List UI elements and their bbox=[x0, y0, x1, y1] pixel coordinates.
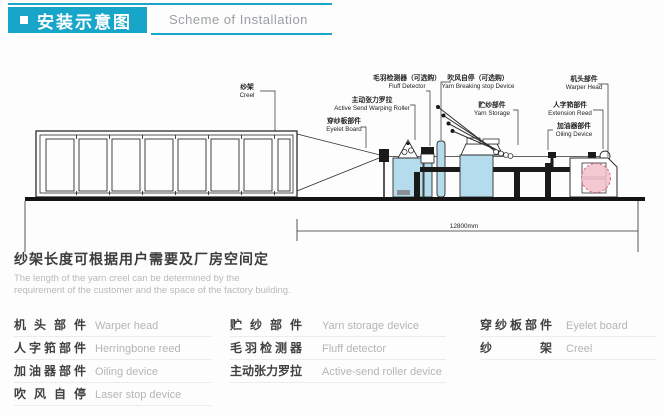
label-warper-head-en: Warper Head bbox=[566, 84, 603, 91]
note-en-line1: The length of the yarn creel can be dete… bbox=[14, 273, 291, 285]
legend-item: 主动张力罗拉Active-send roller device bbox=[230, 360, 446, 383]
floor-line bbox=[25, 197, 645, 201]
legend-term-en: Oiling device bbox=[95, 361, 158, 383]
label-yarn-breaking-en: Yarn Breaking stop Device bbox=[442, 83, 515, 90]
note-zh: 纱架长度可根据用户需要及厂房空间定 bbox=[14, 249, 291, 269]
legend-item: 人字筘部件Herringbone reed bbox=[14, 337, 212, 360]
legend-term-zh: 吹风自停 bbox=[14, 383, 86, 405]
legend-term-zh: 人字筘部件 bbox=[14, 337, 86, 359]
header-accent-line-top bbox=[8, 3, 332, 5]
label-leader-lines bbox=[260, 82, 608, 157]
legend-term-en: Fluff detector bbox=[322, 338, 386, 360]
legend-column-3: 穿纱板部件Eyelet board 纱架Creel bbox=[480, 314, 656, 360]
legend-item: 吹风自停Laser stop device bbox=[14, 383, 212, 406]
header-accent-line-bottom bbox=[151, 33, 332, 35]
label-creel-zh: 纱架 bbox=[239, 82, 254, 91]
creel-length-note: 纱架长度可根据用户需要及厂房空间定 The length of the yarn… bbox=[14, 249, 291, 296]
legend-term-en: Laser stop device bbox=[95, 384, 181, 406]
legend-term-en: Eyelet board bbox=[566, 315, 628, 337]
label-fluff-detector-zh: 毛羽检测器（可选购） bbox=[373, 73, 441, 82]
warper-head-drawing bbox=[570, 158, 617, 197]
legend-term-en: Active-send roller device bbox=[322, 361, 442, 383]
label-extension-reed-zh: 人字筘部件 bbox=[553, 100, 587, 109]
label-eyelet-board-zh: 穿纱板部件 bbox=[327, 116, 361, 125]
label-extension-reed-en: Extension Reed bbox=[548, 110, 592, 117]
yarn-storage-drawing bbox=[436, 105, 513, 197]
legend-term-zh: 贮纱部件 bbox=[230, 314, 302, 336]
legend-item: 毛羽检测器Fluff detector bbox=[230, 337, 446, 360]
label-oiling-device-en: Oiling Device bbox=[556, 131, 593, 138]
legend-item: 加油器部件Oiling device bbox=[14, 360, 212, 383]
legend-term-en: Yarn storage device bbox=[322, 315, 419, 337]
legend-item: 贮纱部件Yarn storage device bbox=[230, 314, 446, 337]
legend-term-en: Warper head bbox=[95, 315, 158, 337]
bullet-square-icon bbox=[20, 16, 28, 24]
label-warper-head-zh: 机头部件 bbox=[570, 74, 597, 83]
label-active-roller-en: Active Send Warping Roller bbox=[334, 105, 409, 112]
legend-term-en: Creel bbox=[566, 338, 592, 360]
legend-term-zh: 主动张力罗拉 bbox=[230, 360, 302, 382]
eyelet-board-drawing bbox=[379, 149, 389, 197]
legend-term-zh: 穿纱板部件 bbox=[480, 314, 552, 336]
legend-term-zh: 纱架 bbox=[480, 337, 552, 359]
legend-item: 机头部件Warper head bbox=[14, 314, 212, 337]
legend-column-1: 机头部件Warper head 人字筘部件Herringbone reed 加油… bbox=[14, 314, 212, 406]
label-yarn-storage-en: Yarn Storage bbox=[474, 110, 511, 117]
legend-term-zh: 毛羽检测器 bbox=[230, 337, 302, 359]
legend-item: 纱架Creel bbox=[480, 337, 656, 360]
page-title-en: Scheme of Installation bbox=[169, 12, 308, 27]
warp-beam-circle bbox=[582, 164, 611, 193]
installation-diagram: 12800mm 纱架 Creel 穿纱板部件 Eyelet Board 主动张力… bbox=[0, 45, 664, 255]
dimension-label: 12800mm bbox=[450, 223, 478, 230]
note-en-line2: requirement of the customer and the spac… bbox=[14, 285, 291, 297]
dimension-lines bbox=[25, 201, 638, 252]
legend-term-en: Herringbone reed bbox=[95, 338, 181, 360]
label-yarn-storage-zh: 贮纱部件 bbox=[477, 100, 505, 109]
legend-term-zh: 机头部件 bbox=[14, 314, 86, 336]
legend-column-2: 贮纱部件Yarn storage device 毛羽检测器Fluff detec… bbox=[230, 314, 446, 383]
label-yarn-breaking-zh: 吹风自停（可选购） bbox=[447, 73, 508, 82]
page-title-zh: 安装示意图 bbox=[37, 8, 132, 33]
note-en: The length of the yarn creel can be dete… bbox=[14, 273, 291, 296]
legend-item: 穿纱板部件Eyelet board bbox=[480, 314, 656, 337]
label-active-roller-zh: 主动张力罗拉 bbox=[352, 95, 393, 104]
label-oiling-device-zh: 加油器部件 bbox=[556, 121, 591, 130]
yarn-thread-lines bbox=[297, 134, 600, 191]
legend-term-zh: 加油器部件 bbox=[14, 360, 86, 382]
creel-drawing bbox=[36, 131, 297, 197]
label-fluff-detector-en: Fluff Detector bbox=[388, 83, 425, 90]
title-badge: 安装示意图 bbox=[8, 7, 147, 33]
label-creel-en: Creel bbox=[240, 92, 255, 99]
label-eyelet-board-en: Eyelet Board bbox=[326, 126, 362, 133]
